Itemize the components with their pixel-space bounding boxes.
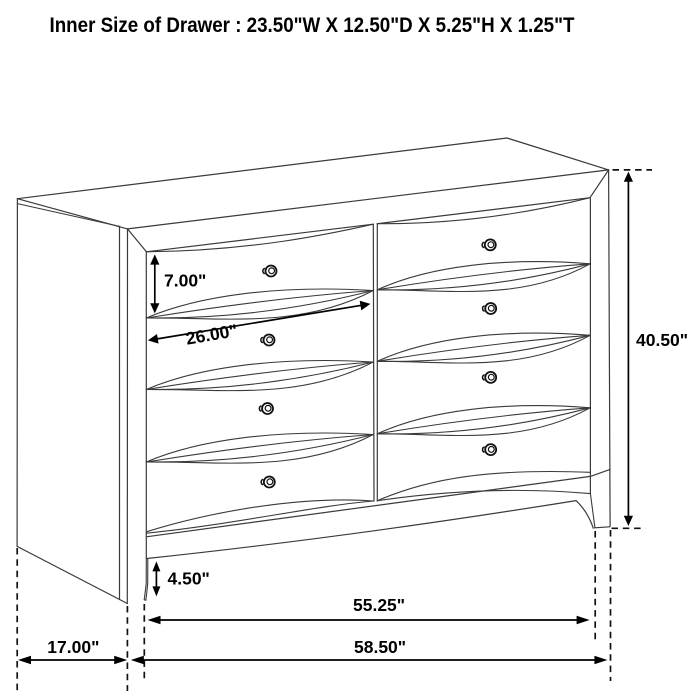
svg-text:58.50": 58.50" <box>354 637 406 657</box>
svg-text:4.50": 4.50" <box>168 569 210 589</box>
svg-text:17.00": 17.00" <box>47 637 99 657</box>
svg-text:Inner Size of Drawer : 23.50"W: Inner Size of Drawer : 23.50"W X 12.50"D… <box>50 14 575 37</box>
svg-text:40.50": 40.50" <box>636 330 688 350</box>
svg-text:55.25": 55.25" <box>353 595 405 615</box>
svg-text:26.00": 26.00" <box>184 320 239 349</box>
svg-text:7.00": 7.00" <box>164 270 206 290</box>
